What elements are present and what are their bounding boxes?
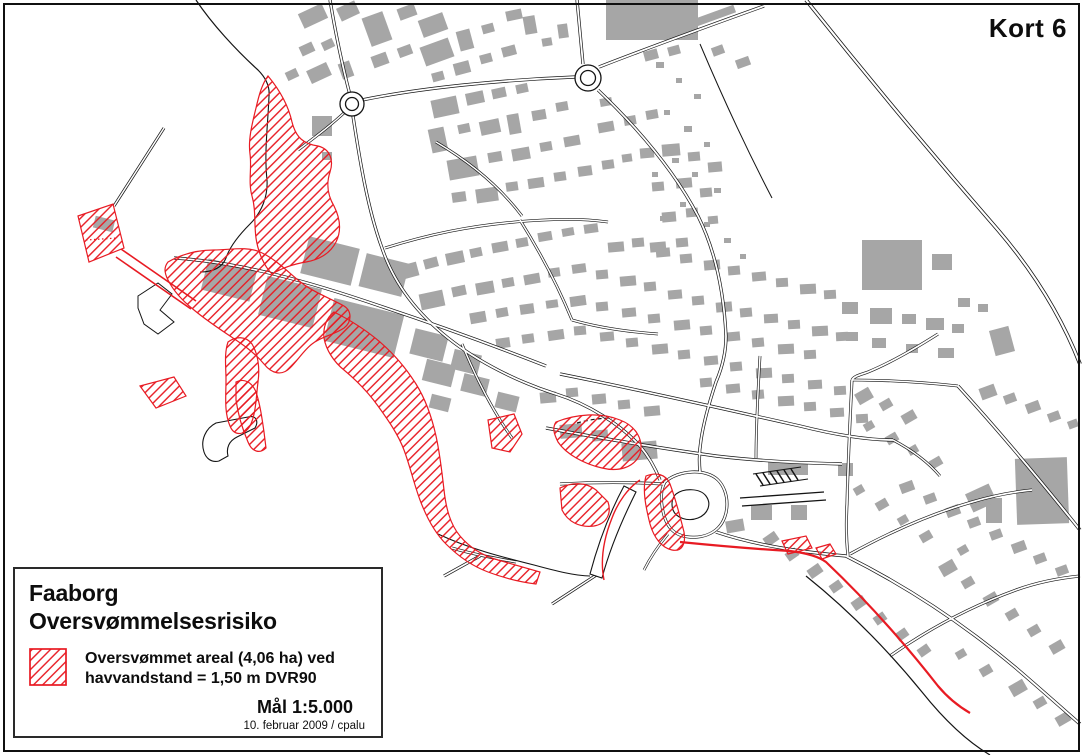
legend-title-subject: Oversvømmelsesrisiko [29,607,367,635]
legend-flood-label: Oversvømmet areal (4,06 ha) ved havvands… [85,648,335,688]
legend-box: Faaborg Oversvømmelsesrisiko Oversvømmet… [13,567,383,738]
legend-flood-row: Oversvømmet areal (4,06 ha) ved havvands… [29,648,367,688]
legend-title-city: Faaborg [29,579,367,607]
sheet-number-label: Kort 6 [989,13,1067,44]
legend-title: Faaborg Oversvømmelsesrisiko [29,579,367,635]
map-sheet: Kort 6 Faaborg Oversvømmelsesrisiko Over… [0,0,1083,755]
map-scale-label: Mål 1:5.000 [29,697,353,718]
map-date-author-label: 10. februar 2009 / cpalu [29,720,365,732]
flood-hatch-swatch-icon [29,648,67,686]
legend-flood-label-line2: havvandstand = 1,50 m DVR90 [85,669,335,689]
legend-flood-label-line1: Oversvømmet areal (4,06 ha) ved [85,649,335,669]
